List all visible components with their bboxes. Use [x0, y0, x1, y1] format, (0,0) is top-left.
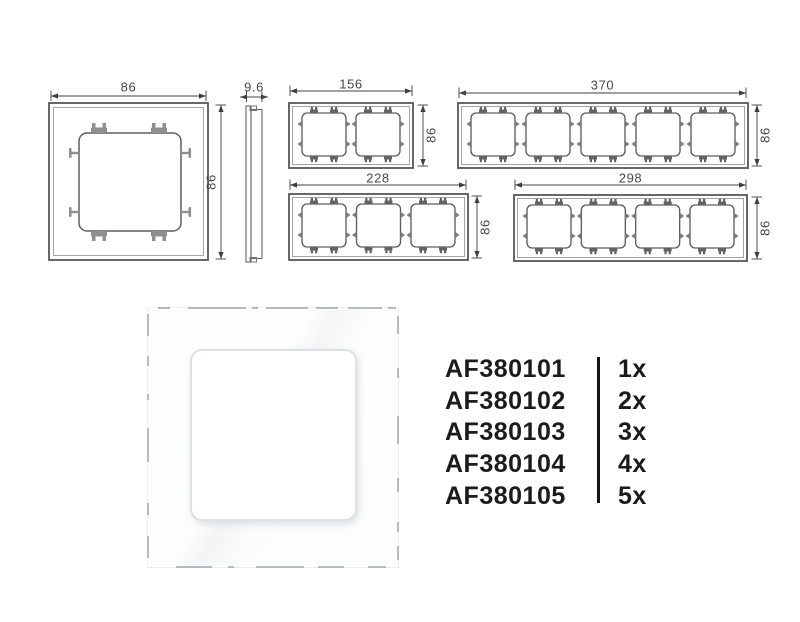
glass-edge-reflection	[147, 536, 149, 558]
product-qty: 4x	[618, 450, 647, 479]
dim-height-3gang: 86	[478, 219, 493, 235]
drawing-side-profile	[246, 106, 262, 262]
product-code: AF380104	[445, 450, 618, 479]
glass-edge-reflection	[316, 307, 338, 309]
product-code: AF380103	[445, 418, 618, 447]
dim-width-4gang: 298	[619, 171, 643, 186]
glass-edge-reflection	[252, 307, 258, 309]
glass-edge-reflection	[397, 522, 399, 532]
product-row: AF380101 1x	[445, 354, 685, 386]
product-row: AF380102 2x	[445, 386, 685, 418]
frame-opening	[190, 349, 357, 521]
drawing-frame-4gang	[514, 195, 747, 261]
spec-sheet: 86 86 9.6 156 86 370 86 228 86 298 86 AF…	[0, 0, 800, 622]
product-code: AF380102	[445, 387, 618, 416]
dim-width-5gang: 370	[591, 78, 615, 93]
glass-edge-reflection	[158, 307, 170, 309]
glass-edge-reflection	[147, 356, 149, 366]
drawing-frame-3gang	[289, 194, 468, 260]
list-divider	[597, 357, 600, 503]
glass-edge-reflection	[397, 368, 399, 378]
dim-lines-1gang	[51, 91, 226, 260]
dim-width-1gang: 86	[121, 80, 137, 95]
glass-edge-reflection	[368, 566, 386, 568]
product-code: AF380105	[445, 482, 618, 511]
glass-edge-reflection	[176, 566, 212, 568]
dim-height-5gang: 86	[758, 127, 773, 143]
glass-edge-reflection	[228, 566, 234, 568]
glass-edge-reflection	[147, 428, 149, 462]
glass-edge-reflection	[147, 394, 149, 400]
glass-edge-reflection	[147, 503, 149, 515]
dim-height-2gang: 86	[424, 127, 439, 143]
dim-width-3gang: 228	[366, 171, 390, 186]
product-qty: 1x	[618, 355, 647, 384]
drawing-frame-5gang	[458, 103, 748, 168]
product-code: AF380101	[445, 355, 618, 384]
glass-edge-reflection	[397, 316, 399, 334]
glass-edge-reflection	[318, 566, 344, 568]
glass-edge-reflection	[188, 307, 246, 309]
glass-edge-reflection	[256, 566, 304, 568]
dim-lines-multi	[290, 86, 762, 260]
glass-edge-reflection	[388, 307, 396, 309]
product-qty: 2x	[618, 387, 647, 416]
product-qty: 3x	[618, 418, 647, 447]
dim-depth-profile: 9.6	[244, 80, 264, 95]
dim-height-1gang: 86	[204, 174, 219, 190]
glass-edge-reflection	[397, 416, 399, 444]
product-qty: 5x	[618, 482, 647, 511]
product-list: AF380101 1x AF380102 2x AF380103 3x AF38…	[445, 354, 685, 514]
glass-edge-reflection	[348, 307, 382, 309]
glass-edge-reflection	[266, 307, 308, 309]
drawing-frame-2gang	[289, 103, 413, 168]
dim-height-4gang: 86	[758, 220, 773, 236]
product-row: AF380104 4x	[445, 449, 685, 481]
glass-edge-reflection	[397, 478, 399, 492]
product-photo	[147, 307, 399, 568]
product-row: AF380105 5x	[445, 480, 685, 512]
drawing-frame-1gang-back	[49, 103, 208, 260]
dim-width-2gang: 156	[339, 77, 363, 92]
product-row: AF380103 3x	[445, 417, 685, 449]
glass-edge-reflection	[397, 546, 399, 560]
glass-edge-reflection	[147, 314, 149, 336]
